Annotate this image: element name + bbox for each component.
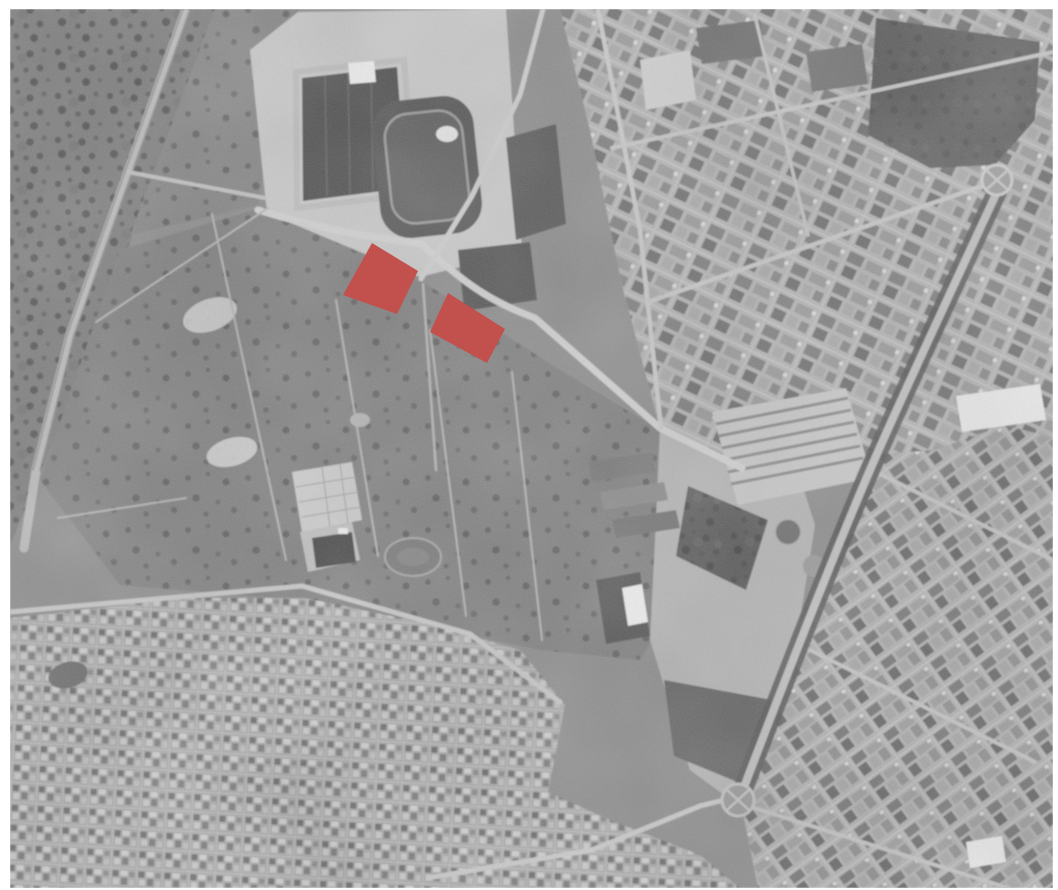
aerial-photo-figure xyxy=(0,0,1058,890)
photo-grain-overlay xyxy=(10,9,1053,888)
document-page xyxy=(0,0,1058,890)
